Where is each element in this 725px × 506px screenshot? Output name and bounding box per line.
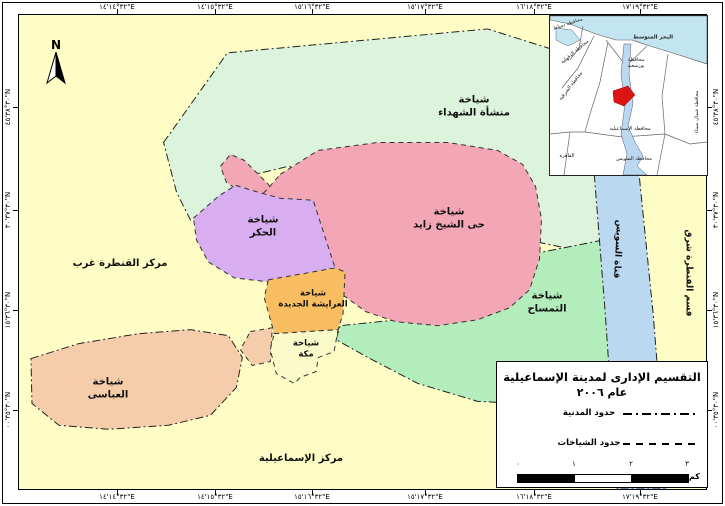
north-arrow: N <box>41 39 71 93</box>
frame-tick <box>312 490 313 495</box>
scale-bar-segment <box>575 475 632 482</box>
scale-unit-label: كم <box>689 472 700 481</box>
frame-tick <box>534 9 535 14</box>
label-manshaat-elshohada: شياخة منشأة الشهداء <box>438 95 510 120</box>
frame-tick <box>215 490 216 495</box>
latitude-label-left-3: ٣٠°٣٦'١٥"N <box>4 292 12 329</box>
frame-tick <box>707 107 712 108</box>
label-markaz-ismailia: مركز الإسماعيلية <box>259 453 343 466</box>
latitude-label-right-2: ٣٠°٣٧'٣٠"N <box>712 192 720 229</box>
latitude-label-right-1: ٣٠°٣٨'٤٥"N <box>712 89 720 126</box>
frame-tick <box>215 9 216 14</box>
legend-subtitle: عام ٢٠٠٦ <box>497 386 707 399</box>
frame-tick <box>707 210 712 211</box>
frame-tick <box>425 9 426 14</box>
scale-tick-1: ١ <box>572 460 576 468</box>
frame-tick <box>707 410 712 411</box>
label-sheikh-zayed: شياخة حى الشيخ زايد <box>413 207 485 232</box>
frame-tick <box>707 310 712 311</box>
north-letter: N <box>41 39 71 51</box>
legend-item-shiakha-boundary: حدود الشياخات <box>497 438 707 452</box>
frame-tick <box>13 410 18 411</box>
latitude-label-right-4: ٣٠°٣٥'٠٠"N <box>712 392 720 429</box>
frame-tick <box>117 490 118 495</box>
map-frame: شياخة منشأة الشهداء شياخة حى الشيخ زايد … <box>18 14 707 490</box>
scale-tick-3: ٣ <box>685 460 689 468</box>
inset-label-suez-gov: محافظة السويس <box>616 156 652 162</box>
frame-tick <box>312 9 313 14</box>
latitude-label-right-3: ٣٠°٣٦'١٥"N <box>712 292 720 329</box>
inset-locator-map: البحر المتوسط محافظة دمياط محافظة الدقهل… <box>549 15 708 176</box>
inset-label-ismailia-gov: محافظة الإسماعيلية <box>609 126 650 132</box>
frame-tick <box>640 490 641 495</box>
north-arrow-icon <box>43 51 69 89</box>
dash-dot-line-sample <box>623 413 699 415</box>
frame-tick <box>13 210 18 211</box>
inset-label-port-said: محافظة بورسعيد <box>627 57 644 69</box>
scale-tick-0: ٠ <box>516 460 520 468</box>
scale-bar-segment <box>518 475 575 482</box>
frame-tick <box>13 107 18 108</box>
latitude-label-left-2: ٣٠°٣٧'٣٠"N <box>4 192 12 229</box>
latitude-label-left-1: ٣٠°٣٨'٤٥"N <box>4 89 12 126</box>
inset-canvas <box>550 16 707 175</box>
legend-item-city-boundary: حدود المدنية <box>497 408 707 422</box>
inset-label-mediterranean: البحر المتوسط <box>633 35 673 42</box>
scale-bar-segment <box>631 475 688 482</box>
frame-tick <box>534 490 535 495</box>
label-elaraysha: شياخة العرايشة الجديدة <box>278 288 347 309</box>
frame-tick <box>640 9 641 14</box>
frame-tick <box>425 490 426 495</box>
dashed-line-sample <box>623 443 699 445</box>
label-eltemsah: شياخة التمساح <box>527 291 566 316</box>
label-qantara-sharq: قسم القنطرة شرق <box>682 229 693 316</box>
legend-title: التقسيم الإدارى لمدينة الإسماعيلية <box>497 369 707 385</box>
scale-bar <box>517 474 689 483</box>
label-qantara-gharb: مركز القنطرة غرب <box>73 258 168 271</box>
label-mekka: شياخة مكة <box>293 338 319 359</box>
scale-tick-2: ٢ <box>629 460 633 468</box>
label-elhekr: شياخة الحكر <box>248 215 279 240</box>
label-elabbasi: شياخة العباسى <box>88 377 129 402</box>
frame-tick <box>13 310 18 311</box>
inset-label-cairo: القاهرة <box>560 153 575 159</box>
inset-label-north-sinai: محافظة شمال سيناء <box>694 90 700 133</box>
legend-box: التقسيم الإدارى لمدينة الإسماعيلية عام ٢… <box>496 361 708 488</box>
latitude-label-left-4: ٣٠°٣٥'٠٠"N <box>4 392 12 429</box>
map-document: شياخة منشأة الشهداء شياخة حى الشيخ زايد … <box>0 0 725 506</box>
frame-tick <box>117 9 118 14</box>
